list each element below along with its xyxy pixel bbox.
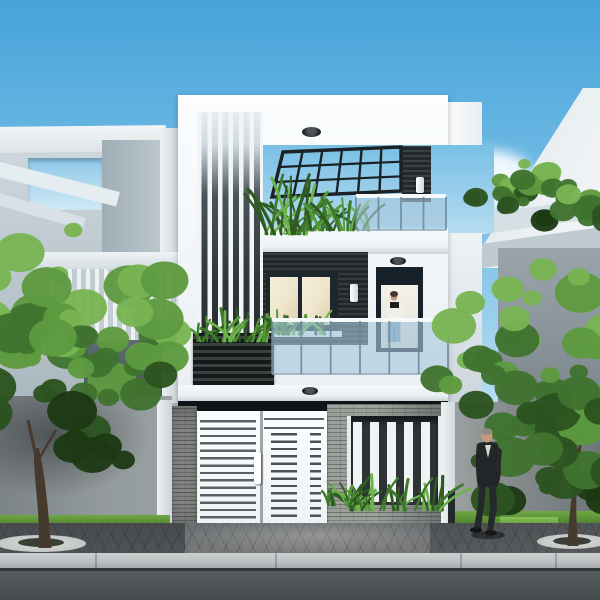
stone-gate-pillar — [172, 406, 197, 527]
terrace-dark-column — [402, 146, 431, 202]
terrace-ceiling-light — [302, 127, 321, 137]
right-tower-lower-wall — [448, 228, 482, 403]
entry-gate — [197, 411, 327, 524]
gate-slat-column — [271, 433, 297, 517]
gate-right-panel — [264, 415, 324, 519]
balcony-ceiling-light — [390, 257, 406, 265]
left-neighbour-window — [84, 340, 162, 402]
terrace-sky-opening — [262, 145, 494, 233]
gate-left-panel — [200, 415, 256, 519]
stone-planter-box — [193, 333, 274, 388]
street-render-scene — [0, 0, 600, 600]
tree-pit-soil — [18, 538, 64, 547]
asphalt-road — [0, 571, 600, 600]
street-curb — [0, 553, 600, 569]
left-neighbour-slat-wall — [50, 269, 178, 349]
window-glass — [302, 277, 330, 325]
fence-window-opening — [347, 416, 442, 505]
terrace-wall-lamp — [416, 177, 424, 193]
window-glass — [270, 277, 298, 325]
gate-slat — [264, 427, 324, 429]
tree-pit-soil — [553, 537, 591, 545]
gate-slat-column — [310, 433, 321, 517]
balcony-wall-lamp — [350, 284, 358, 302]
bollard-post — [448, 491, 455, 527]
curb-joint — [460, 553, 462, 569]
curb-joint — [95, 553, 97, 569]
fence-window-slats — [353, 422, 436, 502]
curb-joint — [555, 553, 557, 569]
left-neighbour-slab — [0, 252, 178, 269]
balcony-door — [376, 267, 423, 352]
left-fence-pilaster — [157, 400, 172, 524]
balcony-windows — [266, 273, 338, 332]
right-fence-wall — [455, 402, 600, 525]
main-house — [178, 95, 448, 408]
gate-handle — [254, 452, 261, 484]
left-fence-tree-shadow — [0, 396, 172, 524]
curb-joint — [275, 553, 277, 569]
right-neighbour-wall — [498, 248, 600, 413]
balcony-door-glass — [381, 285, 418, 348]
gate-slat — [264, 418, 324, 420]
window-sill — [262, 331, 342, 337]
entry-downlight — [302, 387, 318, 395]
